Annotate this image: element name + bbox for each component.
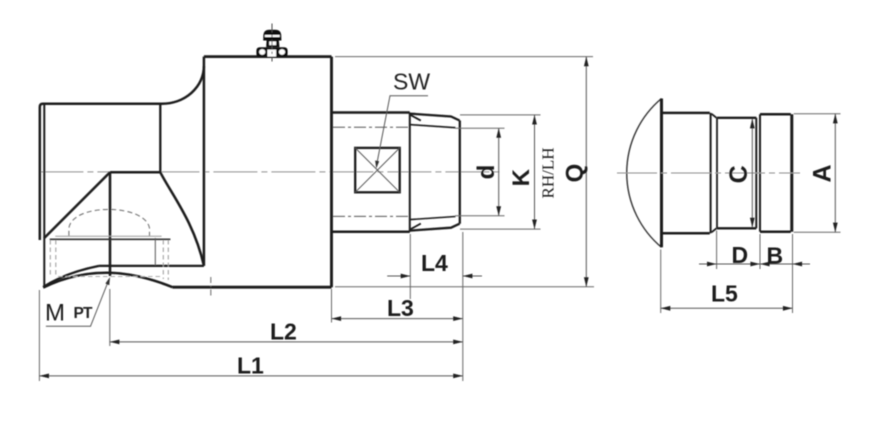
svg-text:M: M — [45, 300, 65, 327]
svg-text:L2: L2 — [270, 319, 297, 345]
svg-text:L3: L3 — [387, 295, 414, 321]
svg-text:RH/LH: RH/LH — [539, 148, 558, 199]
svg-text:L1: L1 — [237, 353, 264, 379]
svg-text:C: C — [725, 165, 753, 183]
svg-text:D: D — [732, 242, 749, 268]
svg-text:L4: L4 — [421, 250, 448, 276]
svg-text:PT: PT — [74, 305, 94, 322]
svg-text:Q: Q — [561, 164, 588, 183]
svg-text:K: K — [508, 168, 535, 186]
svg-text:SW: SW — [393, 69, 430, 95]
svg-text:A: A — [808, 164, 836, 182]
svg-text:d: d — [473, 165, 500, 180]
svg-text:B: B — [767, 243, 784, 269]
svg-text:L5: L5 — [711, 281, 738, 307]
